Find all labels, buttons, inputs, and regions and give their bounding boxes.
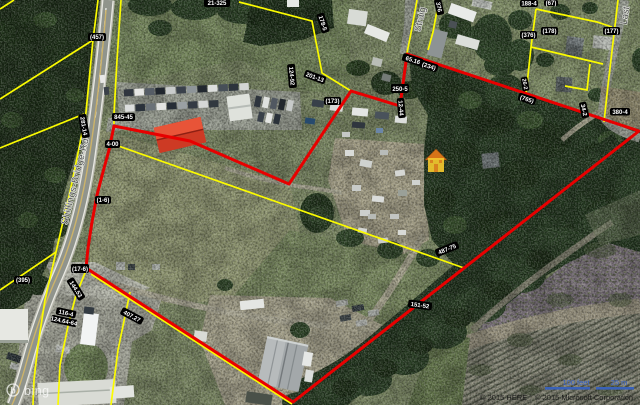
- svg-text:188-4: 188-4: [521, 2, 537, 8]
- svg-text:© 2015 Microsoft Corporation: © 2015 Microsoft Corporation: [535, 393, 633, 402]
- svg-text:(177): (177): [604, 29, 618, 35]
- svg-text:(376): (376): [521, 33, 535, 39]
- svg-text:25 m: 25 m: [611, 378, 628, 387]
- svg-text:(1-6): (1-6): [97, 198, 110, 204]
- svg-text:21-325: 21-325: [208, 1, 227, 7]
- svg-text:100 feet: 100 feet: [562, 378, 590, 387]
- svg-text:b: b: [10, 386, 16, 396]
- svg-text:4-00: 4-00: [106, 142, 119, 148]
- svg-text:845-45: 845-45: [114, 115, 133, 121]
- svg-text:(173): (173): [325, 99, 339, 105]
- svg-text:© 2015 HERE: © 2015 HERE: [480, 393, 527, 402]
- svg-text:(67): (67): [546, 1, 557, 7]
- svg-text:250-5: 250-5: [392, 87, 408, 93]
- svg-text:(178): (178): [542, 29, 556, 35]
- svg-text:380-4: 380-4: [612, 110, 628, 116]
- svg-text:(17-6): (17-6): [72, 267, 88, 273]
- svg-text:(395): (395): [16, 278, 30, 284]
- svg-text:bing: bing: [24, 384, 50, 398]
- svg-text:(457): (457): [90, 35, 104, 41]
